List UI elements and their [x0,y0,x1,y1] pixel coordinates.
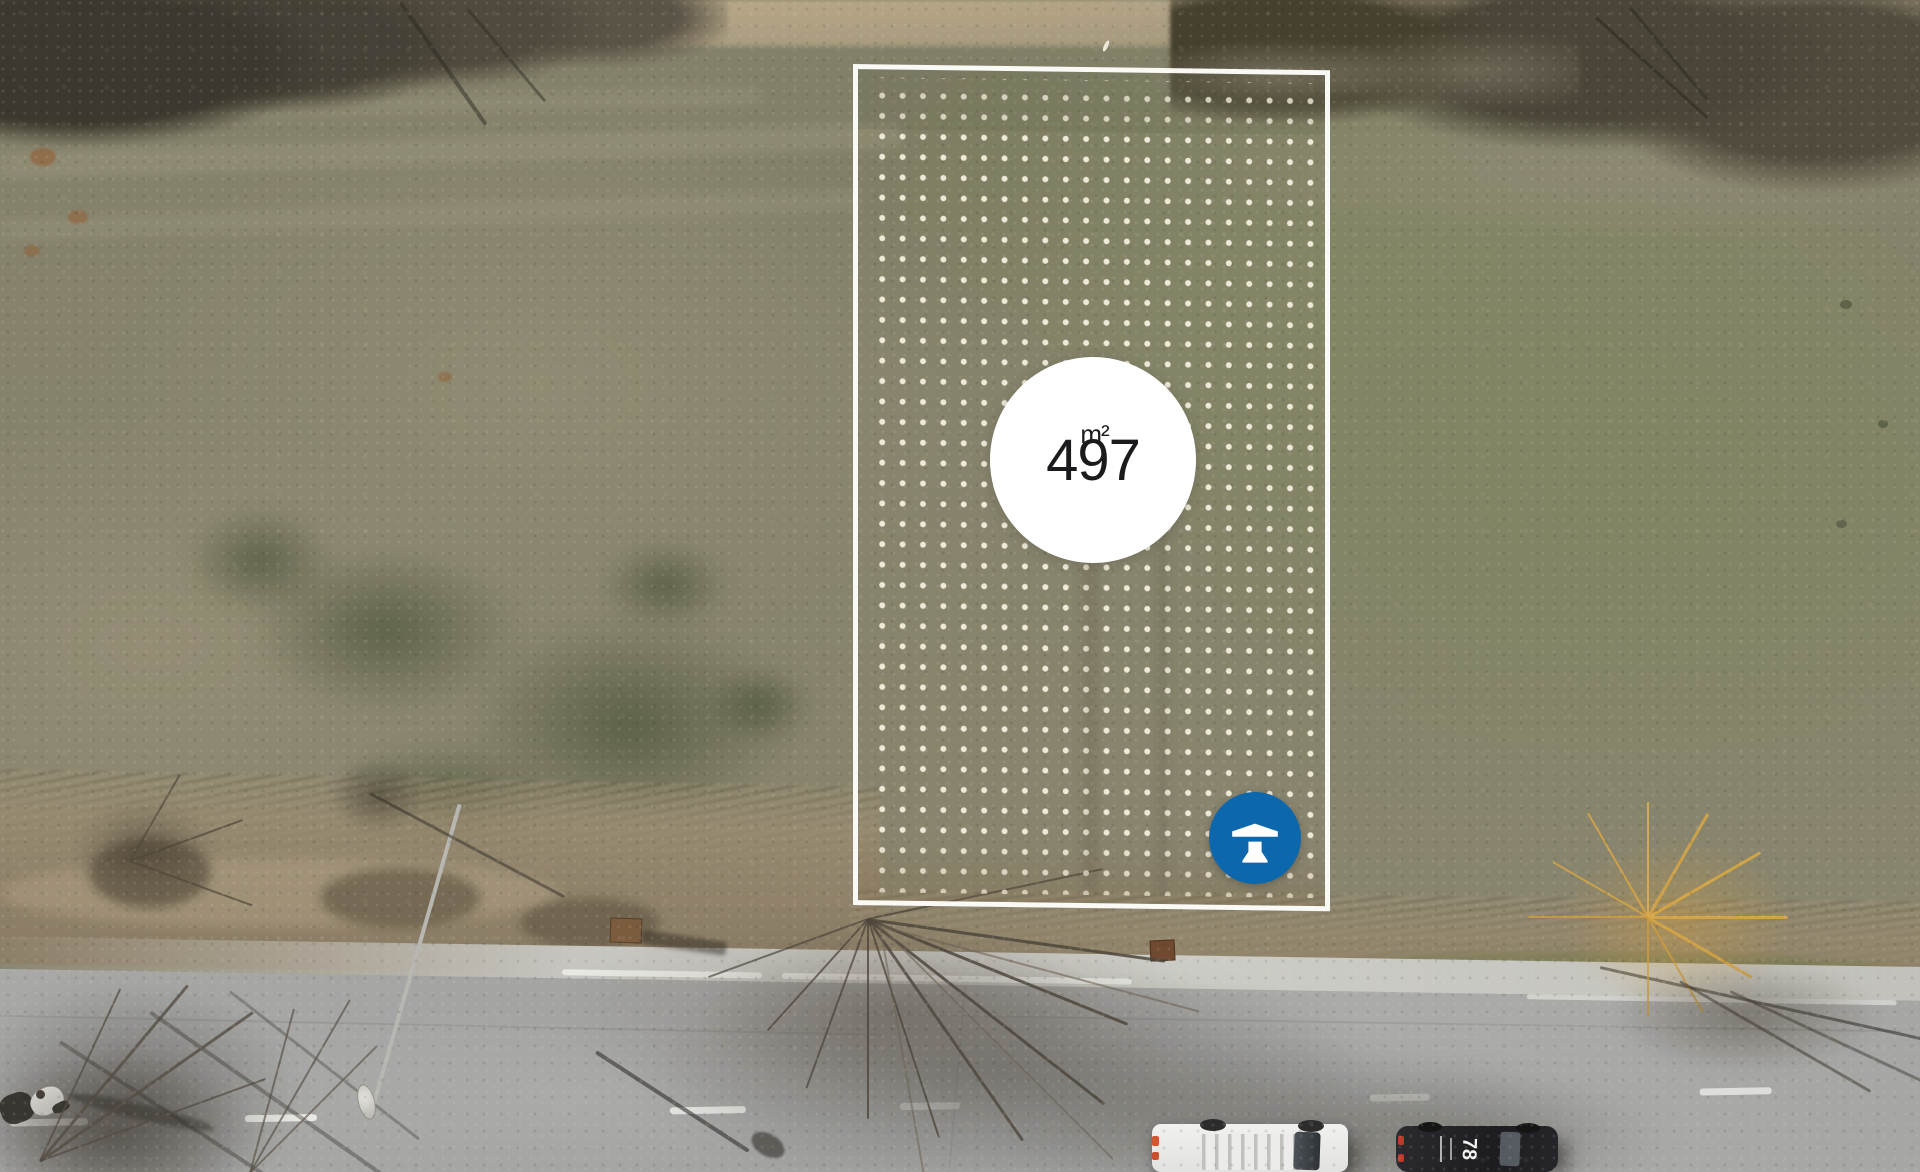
white-van [1152,1124,1348,1172]
van-wheel [1298,1120,1324,1132]
shrub-speck [1840,300,1852,309]
orange-branch [1648,916,1788,919]
area-badge: 497m² [990,357,1196,563]
tree-branch [867,919,869,1119]
dirt-spot [438,372,452,382]
dirt-spot [24,245,40,257]
shrub-speck [1836,520,1847,528]
van-roof-ribs [1202,1134,1298,1170]
black-car: 78 [1396,1126,1558,1172]
car-roof-stripe [1440,1136,1442,1162]
aerial-photo-scene: 78 497m² [0,0,1920,1172]
car-roof-decal: 78 [1453,1133,1484,1164]
car-wheel [1516,1123,1540,1133]
grass-dark-patch [705,665,815,745]
shrub-speck [1878,420,1888,428]
roof-pillar-logo-icon [1225,808,1285,868]
plot-top-tint [858,69,1325,135]
tire-track [1156,493,1168,893]
treeline-top-left [0,0,728,148]
car-wheel [1418,1122,1442,1132]
dirt-spot [30,148,56,166]
van-windshield [1293,1132,1320,1171]
brush-dark-clump [320,868,480,928]
van-taillight [1152,1152,1159,1160]
orange-branch [1647,802,1649,917]
car-taillight [1398,1154,1404,1162]
car-windshield [1499,1132,1520,1167]
orange-tree-shadow [1610,958,1880,1073]
grass-dark-patch [185,505,335,615]
grass-dark-patch [600,540,730,630]
utility-box [610,917,643,943]
van-taillight [1152,1136,1159,1146]
van-wheel [1200,1119,1226,1131]
bare-tree-crown [70,798,220,908]
orange-branch [1528,916,1648,918]
car-taillight [1398,1136,1404,1145]
area-unit: m² [1080,419,1108,450]
dirt-spot [68,210,88,224]
tree-twig-mass [700,930,1100,1090]
car-roof-stripe [1450,1138,1452,1160]
agency-logo-badge [1209,792,1301,884]
